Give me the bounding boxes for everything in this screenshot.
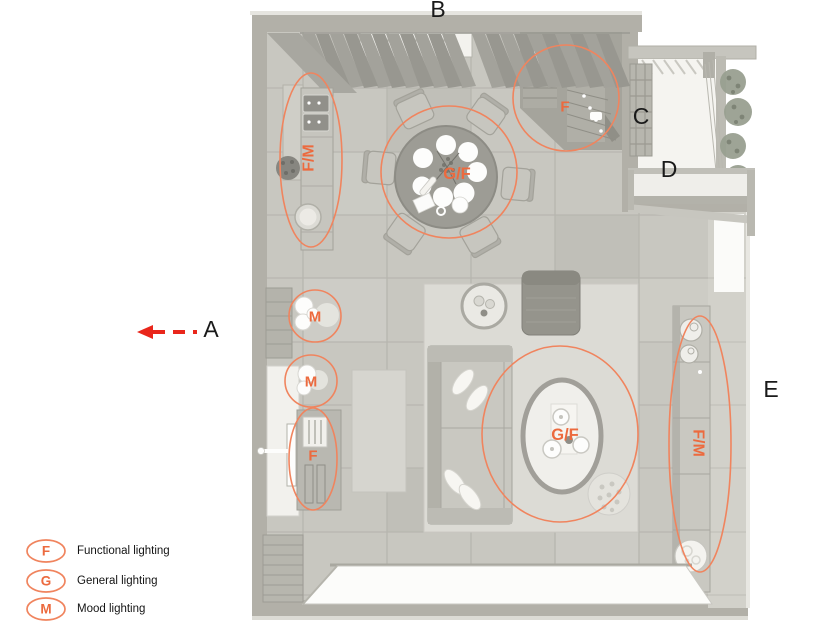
legend-item-functional: F Functional lighting [27,540,170,562]
legend-symbol-g: G [41,574,52,589]
zone-label-dining: G/F [443,165,471,183]
legend-label-mood: Mood lighting [77,603,145,615]
legend-item-mood: M Mood lighting [27,598,145,620]
bar-cabinet [297,410,341,510]
zone-label-kitchen: F/M [301,144,318,172]
wall-top [252,15,642,32]
callout-b: B [430,0,445,22]
sofa [428,346,512,524]
legend-label-functional: Functional lighting [77,545,170,557]
floor-plan-canvas: F/M G/F F M M F G/F F/M A B C D E F Func… [0,0,817,632]
legend-label-general: General lighting [77,575,158,587]
left-wall-console [266,288,292,358]
callout-e: E [763,376,778,402]
legend-item-general: G General lighting [27,570,158,592]
small-rug [352,370,406,492]
direction-arrow [137,325,197,339]
zone-label-sideboard: F/M [690,429,707,457]
bottom-left-slats [263,535,303,602]
side-table [462,284,506,328]
legend-symbol-f: F [42,544,50,559]
pouf [588,473,630,515]
zone-label-lamps-lower: M [305,374,318,391]
callout-a: A [203,316,219,342]
wall-left [252,15,267,618]
zone-label-bar-cabinet: F [308,448,317,465]
zone-label-stairs: F [560,99,569,116]
sink-icon [295,204,321,230]
callout-c: C [633,103,650,129]
pergola-beam [628,46,756,59]
callout-d: D [661,156,678,182]
armchair [522,271,580,335]
legend-symbol-m: M [40,602,51,617]
zone-label-coffee-table: G/F [551,426,579,444]
zone-label-lamps-upper: M [309,309,322,326]
floor-opening [303,565,712,604]
wall-right-face [708,212,750,608]
legend: F Functional lighting G General lighting… [27,540,170,620]
right-wall-window [714,214,744,292]
floor-plan-page: F/M G/F F M M F G/F F/M A B C D E F Func… [0,0,817,632]
teapot-icon [452,197,468,213]
